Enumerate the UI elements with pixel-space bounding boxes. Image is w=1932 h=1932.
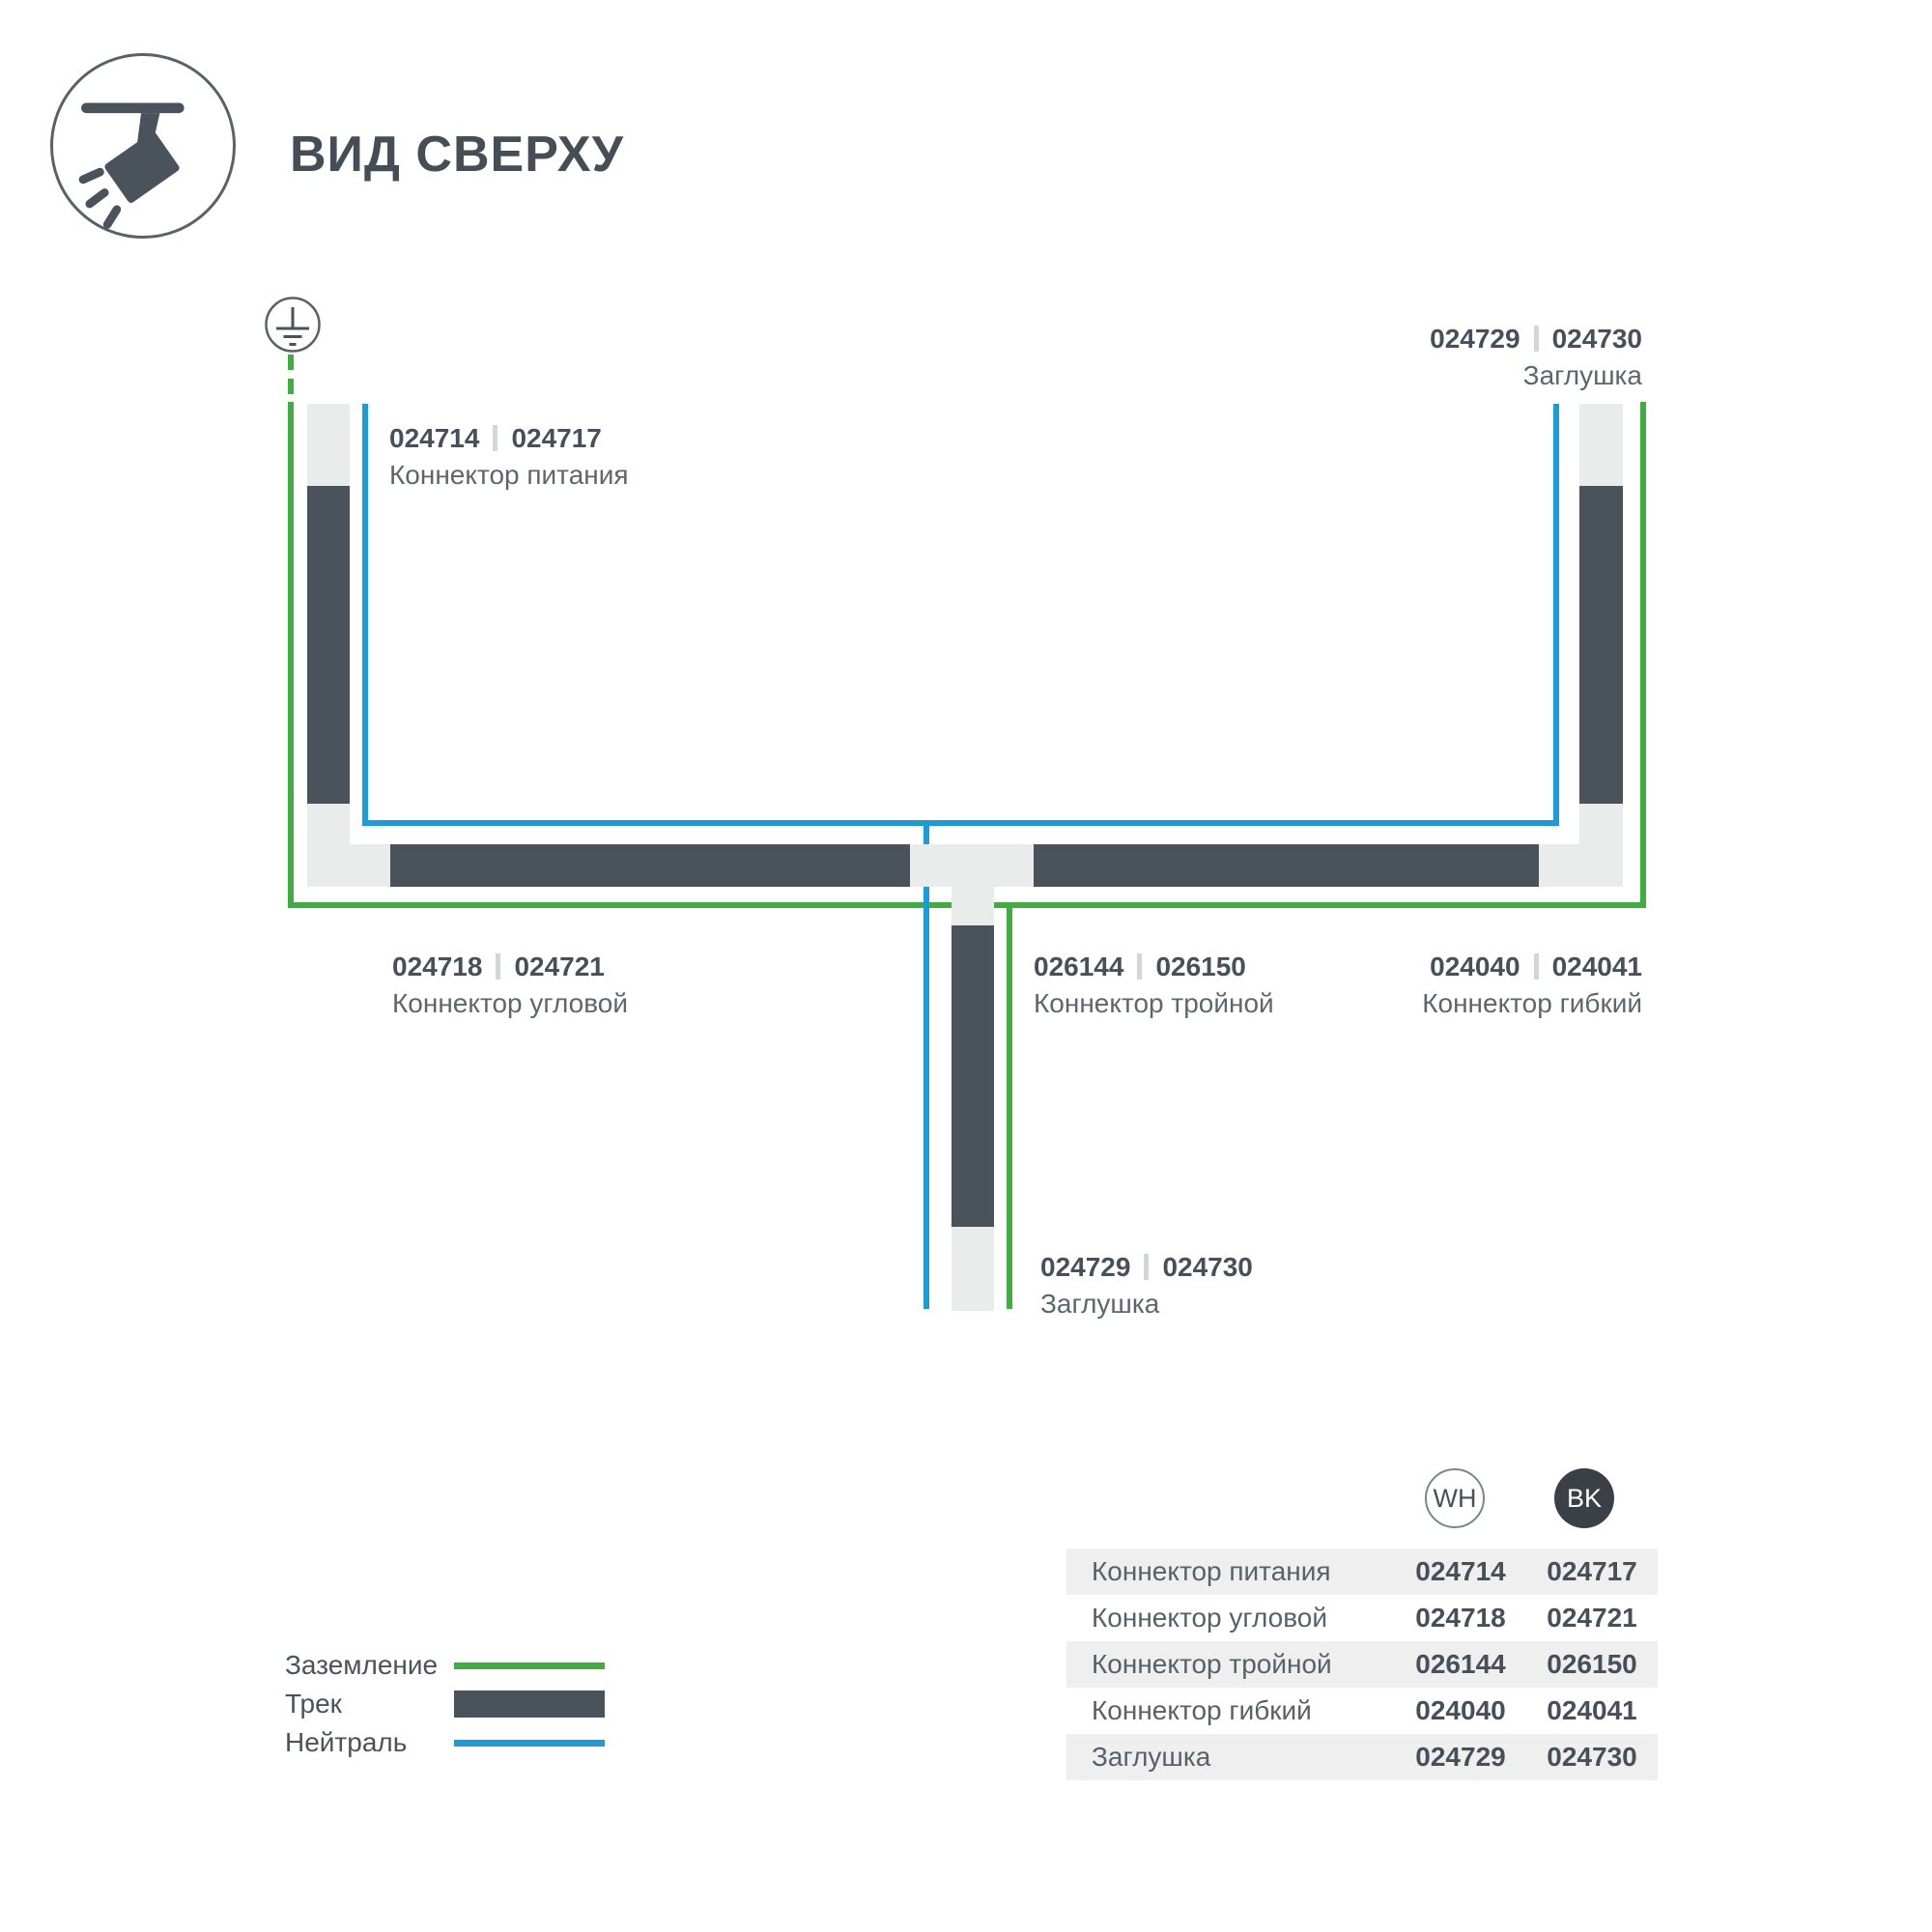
earth-ground-icon [264, 296, 322, 354]
part-name-cell: Коннектор гибкий [1066, 1695, 1395, 1726]
table-row: Коннектор угловой 024718 024721 [1066, 1595, 1658, 1641]
triple-connector-stub [952, 887, 994, 925]
code-bk: 024041 [1552, 952, 1642, 981]
part-name-cell: Заглушка [1066, 1742, 1395, 1773]
label-corner-codes: 024718024721 [392, 951, 628, 983]
ground-wire-left [288, 402, 294, 908]
label-triple-connector: 026144026150 Коннектор тройной [1034, 951, 1274, 1020]
bk-code-cell: 024721 [1526, 1603, 1658, 1634]
code-separator [1137, 953, 1142, 980]
bk-code-cell: 026150 [1526, 1649, 1658, 1680]
power-connector-block [307, 404, 350, 486]
legend-label: Заземление [285, 1650, 454, 1681]
track-swatch [454, 1690, 605, 1718]
code-wh: 024729 [1430, 324, 1520, 354]
label-flex-codes: 024040024041 [1422, 951, 1642, 983]
code-wh: 024718 [392, 952, 482, 981]
ground-line-swatch [454, 1662, 605, 1669]
part-name-cell: Коннектор тройной [1066, 1649, 1395, 1680]
label-cap-bottom-name: Заглушка [1040, 1288, 1253, 1321]
neutral-line-swatch [454, 1740, 605, 1747]
parts-table: WH BK Коннектор питания 024714 024717 Ко… [1066, 1468, 1658, 1780]
table-row: Коннектор гибкий 024040 024041 [1066, 1688, 1658, 1734]
legend-item-track: Трек [285, 1685, 605, 1723]
bk-code-cell: 024730 [1526, 1742, 1658, 1773]
part-name-cell: Коннектор угловой [1066, 1603, 1395, 1634]
wh-code-cell: 026144 [1395, 1649, 1526, 1680]
label-power-codes: 024714024717 [389, 422, 629, 455]
track-segment-stub [952, 925, 994, 1227]
part-name-cell: Коннектор питания [1066, 1556, 1395, 1587]
label-cap-top-codes: 024729024730 [1430, 323, 1642, 355]
code-separator [1534, 953, 1539, 980]
page-title: ВИД СВЕРХУ [290, 126, 624, 184]
label-power-name: Коннектор питания [389, 459, 629, 492]
bk-code-cell: 024041 [1526, 1695, 1658, 1726]
code-bk: 026150 [1155, 952, 1245, 981]
code-wh: 024040 [1430, 952, 1520, 981]
code-bk: 024721 [514, 952, 604, 981]
label-cap-bottom-codes: 024729024730 [1040, 1251, 1253, 1284]
code-separator [496, 953, 500, 980]
code-wh: 024714 [389, 423, 479, 453]
label-end-cap-top: 024729024730 Заглушка [1430, 323, 1642, 392]
parts-table-header: WH BK [1066, 1468, 1658, 1548]
page: ВИД СВЕРХУ 024714024717 [0, 0, 1932, 1932]
label-flex-name: Коннектор гибкий [1422, 987, 1642, 1020]
col-wh-badge: WH [1425, 1468, 1485, 1528]
neutral-wire-branch [923, 826, 929, 1309]
code-separator [1534, 326, 1539, 352]
table-row: Коннектор тройной 026144 026150 [1066, 1641, 1658, 1688]
label-corner-connector: 024718024721 Коннектор угловой [392, 951, 628, 1020]
legend-label: Трек [285, 1689, 454, 1719]
label-flex-connector: 024040024041 Коннектор гибкий [1422, 951, 1642, 1020]
col-bk-badge: BK [1554, 1468, 1614, 1528]
wh-code-cell: 024729 [1395, 1742, 1526, 1773]
label-triple-name: Коннектор тройной [1034, 987, 1274, 1020]
code-bk: 024717 [511, 423, 601, 453]
code-separator [493, 425, 497, 451]
legend: Заземление Трек Нейтраль [285, 1646, 605, 1762]
end-cap-block-bottom [952, 1227, 994, 1311]
label-triple-codes: 026144026150 [1034, 951, 1274, 983]
table-row: Заглушка 024729 024730 [1066, 1734, 1658, 1780]
track-segment-bottom-left [390, 844, 910, 887]
wh-code-cell: 024040 [1395, 1695, 1526, 1726]
legend-item-neutral: Нейтраль [285, 1723, 605, 1762]
track-segment-left [307, 486, 350, 804]
flex-connector-block-vertical [1579, 804, 1623, 887]
neutral-wire-middle [362, 820, 1559, 826]
neutral-wire-left [362, 404, 368, 826]
triple-connector-block [910, 844, 1034, 887]
corner-connector-block-horizontal [307, 844, 390, 887]
ground-wire-right [1640, 402, 1646, 908]
ground-wire-branch [1007, 908, 1012, 1309]
label-end-cap-bottom: 024729024730 Заглушка [1040, 1251, 1253, 1321]
code-wh: 024729 [1040, 1252, 1130, 1282]
track-spotlight-icon [50, 53, 236, 239]
neutral-wire-right [1553, 404, 1559, 826]
code-bk: 024730 [1162, 1252, 1252, 1282]
bk-code-cell: 024717 [1526, 1556, 1658, 1587]
label-cap-top-name: Заглушка [1430, 359, 1642, 392]
label-corner-name: Коннектор угловой [392, 987, 628, 1020]
table-row: Коннектор питания 024714 024717 [1066, 1548, 1658, 1595]
wh-code-cell: 024718 [1395, 1603, 1526, 1634]
track-spotlight-glyph [53, 56, 233, 236]
label-power-connector: 024714024717 Коннектор питания [389, 422, 629, 492]
track-segment-right [1579, 486, 1623, 804]
track-segment-bottom-right [1034, 844, 1539, 887]
wh-code-cell: 024714 [1395, 1556, 1526, 1587]
legend-label: Нейтраль [285, 1727, 454, 1758]
end-cap-block-top-right [1579, 404, 1623, 486]
code-separator [1144, 1254, 1149, 1280]
code-bk: 024730 [1552, 324, 1642, 354]
ground-wire-dashed-segment [288, 355, 294, 402]
legend-item-ground: Заземление [285, 1646, 605, 1685]
code-wh: 026144 [1034, 952, 1123, 981]
